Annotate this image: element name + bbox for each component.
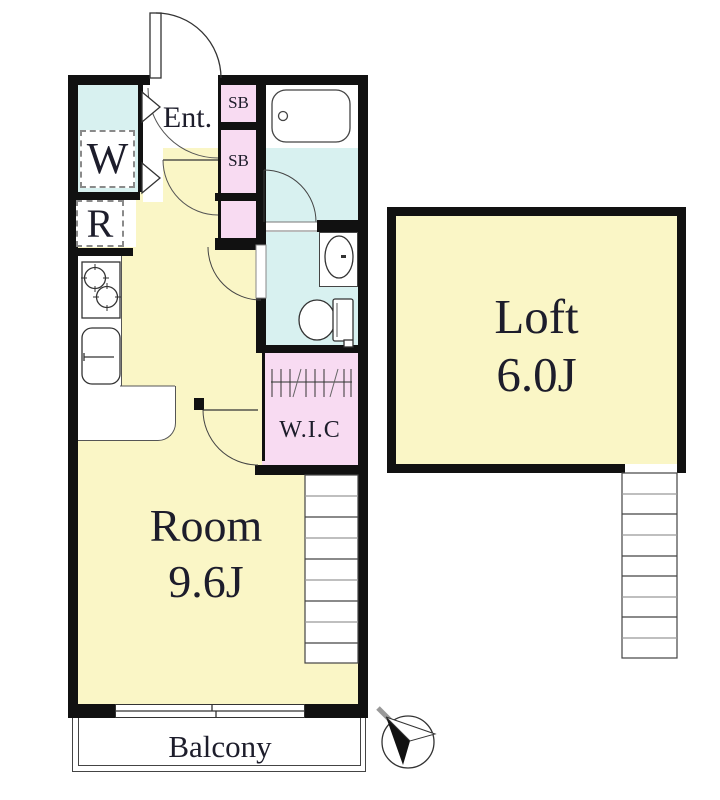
shoebox-lower-label: SB (221, 130, 256, 193)
toilet-door-arc (208, 247, 261, 300)
stairs-loft (622, 473, 677, 658)
entrance-door-leaf (150, 13, 161, 78)
room-name-label: Room (96, 498, 316, 554)
basin-bowl (325, 236, 353, 278)
fridge-label: R (76, 200, 124, 247)
wic-label: W.I.C (262, 408, 358, 453)
hall-door-arc (163, 160, 218, 215)
entrance-label: Ent. (150, 98, 225, 136)
room-door-arc (203, 410, 258, 465)
shoebox-upper-label: SB (221, 85, 256, 122)
balcony-label: Balcony (115, 727, 325, 767)
loft-size-label: 6.0J (396, 346, 677, 404)
step-marker-lower (142, 163, 160, 193)
toilet-bowl (299, 300, 335, 340)
kitchen-sink (82, 328, 120, 384)
toilet-door-opening (256, 245, 266, 298)
room-size-label: 9.6J (96, 554, 316, 610)
floor-plan: Ent. W R SB SB W.I.C Room 9.6J Loft 6.0J… (0, 0, 720, 800)
basin-faucet (341, 255, 346, 258)
toilet-tank (333, 299, 353, 341)
wic-hanger-rail (271, 369, 352, 397)
entrance-door-arc (156, 13, 221, 78)
loft-name-label: Loft (396, 288, 677, 346)
bathroom-door-arc (264, 170, 316, 222)
north-arrow-icon (378, 708, 435, 768)
washer-label: W (80, 130, 135, 188)
bathtub (272, 90, 350, 142)
toilet-paper-holder (344, 340, 353, 347)
